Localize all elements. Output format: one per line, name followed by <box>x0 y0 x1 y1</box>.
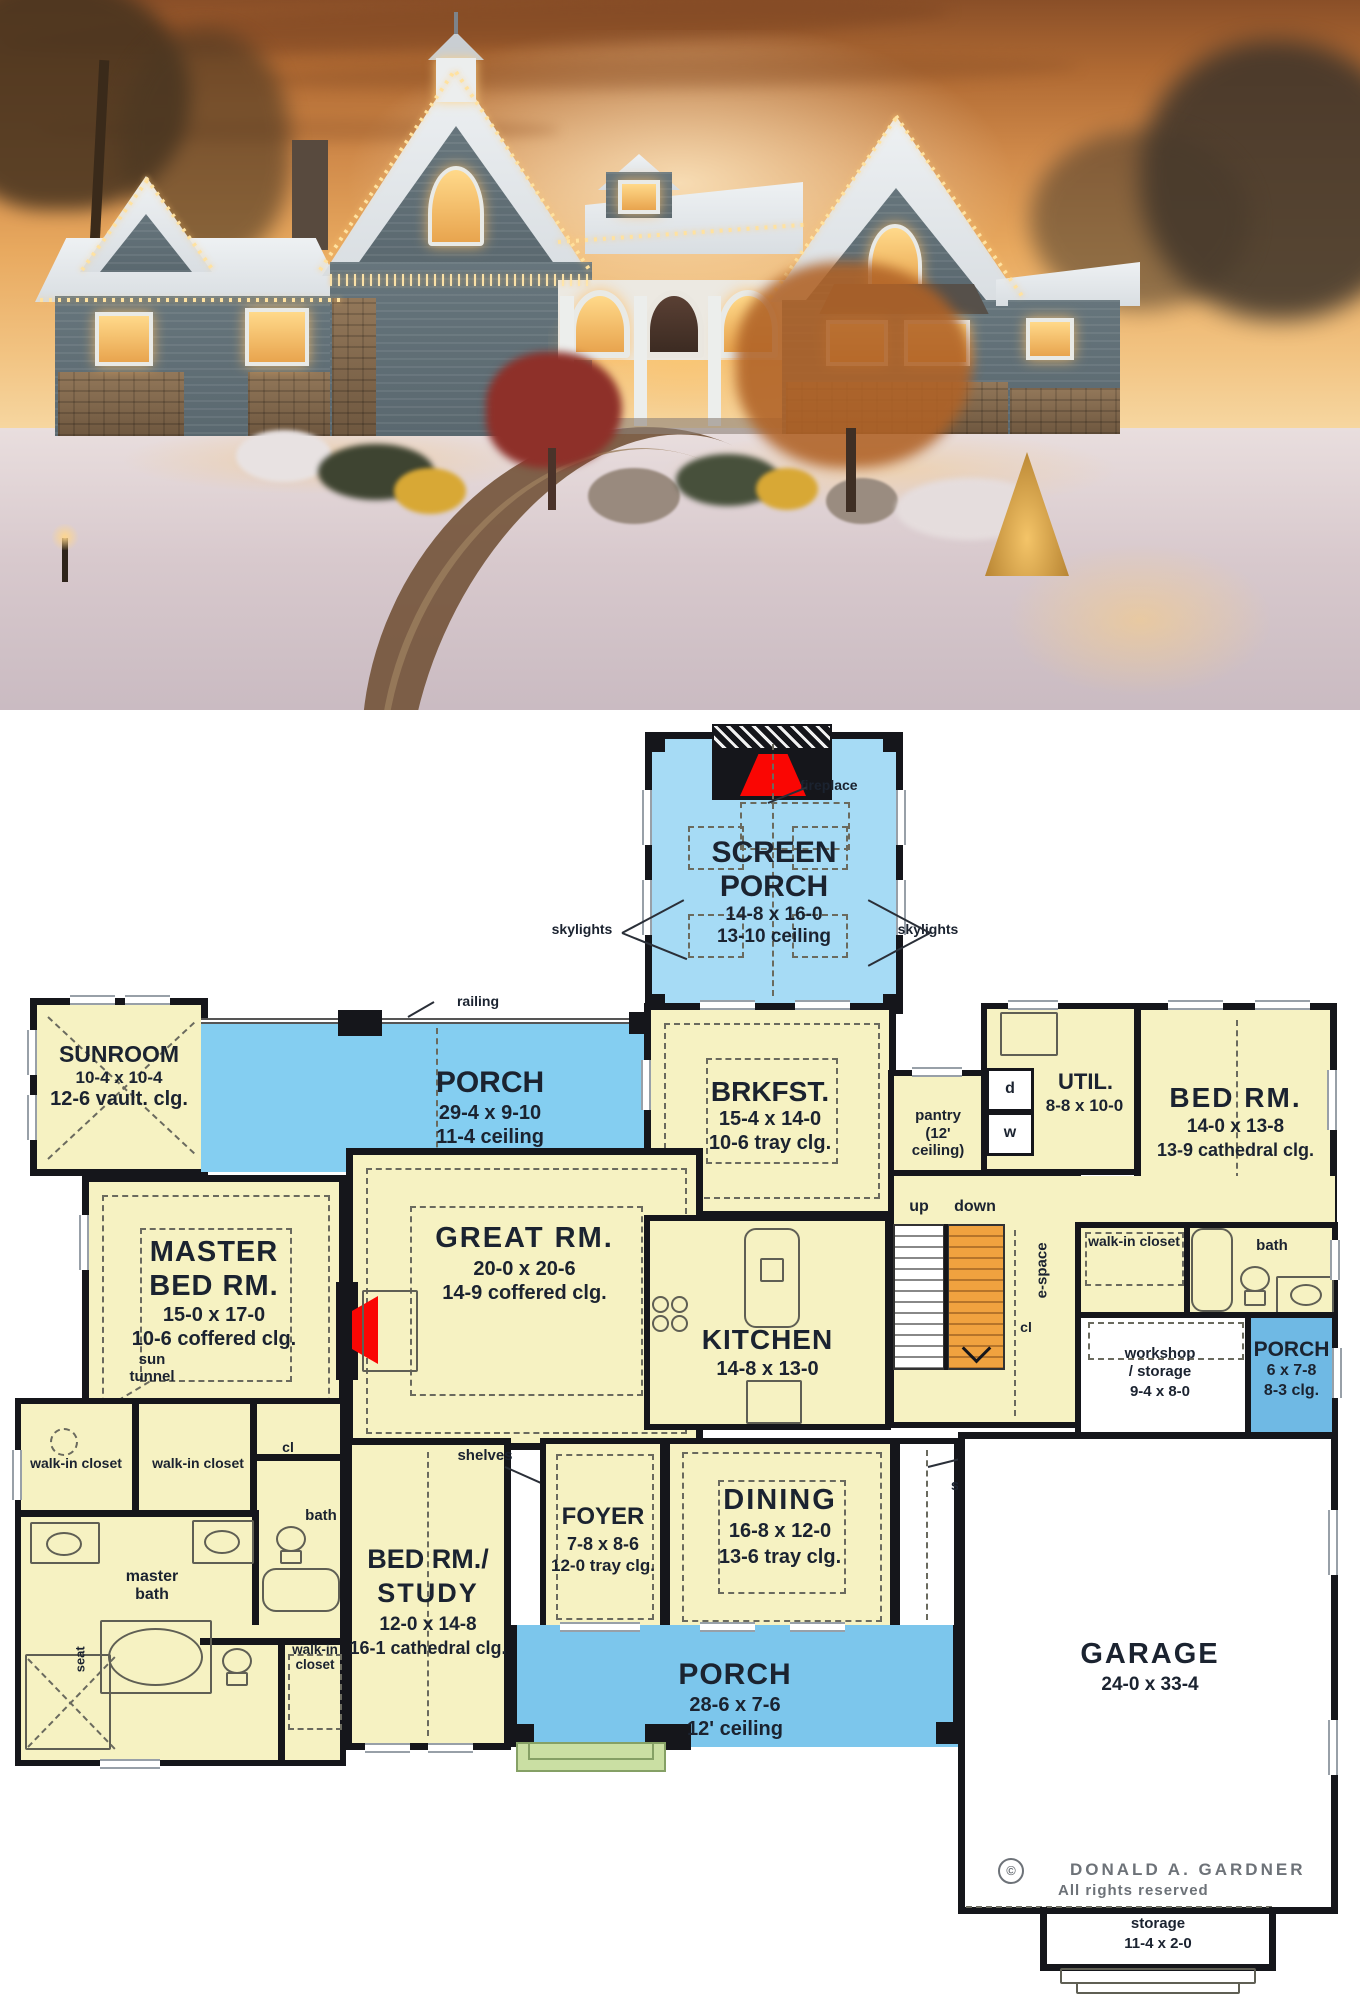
garage-title: GARAGE <box>1040 1638 1260 1670</box>
dining-dims: 16-8 x 12-0 <box>664 1520 896 1542</box>
toilet <box>222 1648 252 1674</box>
breakfast-dims: 15-4 x 14-0 <box>644 1108 896 1130</box>
kitchen-title: KITCHEN <box>644 1324 891 1355</box>
closet-label: cl <box>268 1440 308 1456</box>
window <box>700 1000 755 1010</box>
seat-label: seat <box>74 1636 89 1682</box>
screen-porch-ceiling: 13-10 ceiling <box>645 926 903 947</box>
cupola-spire <box>454 12 458 34</box>
bedroom-right-title: BED RM. <box>1134 1082 1337 1113</box>
down-label: down <box>938 1198 1012 1216</box>
string-lights <box>40 298 346 302</box>
porch-column <box>634 296 647 426</box>
window <box>1328 1510 1338 1575</box>
bath-right-label: bath <box>1242 1238 1302 1255</box>
window <box>790 1622 845 1632</box>
sunroom-title: SUNROOM <box>30 1042 208 1068</box>
utility-dims: 8-8 x 10-0 <box>1042 1096 1127 1115</box>
toilet <box>276 1526 306 1552</box>
bath-label: bath <box>296 1508 346 1525</box>
top-porch-title: PORCH <box>290 1066 690 1100</box>
garage-step <box>1076 1982 1240 1994</box>
sink <box>204 1530 240 1554</box>
porch-post <box>338 1010 382 1036</box>
toilet-tank <box>226 1672 248 1686</box>
boulder <box>588 468 680 524</box>
workshop-label: workshop <box>1095 1346 1225 1363</box>
top-porch-dims: 29-4 x 9-10 <box>290 1102 690 1124</box>
dining-ceiling: 13-6 tray clg. <box>664 1546 896 1568</box>
top-porch-ceiling: 11-4 ceiling <box>290 1126 690 1148</box>
porch-right-ceiling: 8-3 clg. <box>1245 1382 1338 1400</box>
window <box>428 1743 473 1753</box>
hall-bridge <box>1075 1176 1335 1226</box>
bathtub <box>262 1568 340 1612</box>
window <box>700 1622 755 1632</box>
toilet-tank <box>280 1550 302 1564</box>
refrigerator <box>746 1380 802 1424</box>
screen-porch-dims: 14-8 x 16-0 <box>645 904 903 925</box>
cooktop-burner <box>652 1296 669 1313</box>
window <box>1330 1240 1340 1280</box>
storage-bottom-label: storage <box>1040 1916 1276 1933</box>
fireplace-label: fireplace <box>800 778 900 794</box>
stairs-up-run <box>893 1224 945 1370</box>
red-maple-trunk <box>548 448 556 510</box>
foyer-dims: 7-8 x 8-6 <box>540 1534 666 1554</box>
sunroom-dims: 10-4 x 10-4 <box>30 1068 208 1087</box>
master-bath-label: master bath <box>112 1568 192 1604</box>
sunroom-ceiling: 12-6 vault. clg. <box>30 1088 208 1110</box>
window <box>795 1000 850 1010</box>
icicle-lights <box>330 274 592 286</box>
sink <box>46 1532 82 1556</box>
toilet <box>1240 1266 1270 1292</box>
floor-plan: SCREEN PORCH 14-8 x 16-0 13-10 ceiling f… <box>0 710 1360 2000</box>
storage-bottom-dims: 11-4 x 2-0 <box>1040 1936 1276 1953</box>
entry-step-inner <box>528 1742 654 1760</box>
left-window-lit <box>95 312 153 366</box>
window <box>70 995 115 1005</box>
dryer-label: d <box>986 1080 1034 1098</box>
utility-title: UTIL. <box>1038 1070 1133 1095</box>
dining-title: DINING <box>664 1484 896 1516</box>
window <box>912 1067 962 1077</box>
porch-column <box>708 296 721 426</box>
washer-label: w <box>986 1124 1034 1142</box>
porch-post <box>645 732 665 752</box>
window <box>100 1759 160 1769</box>
sink <box>1290 1284 1322 1306</box>
entry-door-gap <box>560 1622 640 1632</box>
garage-side-window-lit <box>1026 318 1074 360</box>
bottom-porch-dims: 28-6 x 7-6 <box>510 1694 960 1716</box>
chimney <box>292 140 328 250</box>
toilet-tank <box>1244 1290 1266 1306</box>
island-sink <box>760 1258 784 1282</box>
railing-leader <box>408 1001 435 1018</box>
foyer-ceiling: 12-0 tray clg. <box>534 1556 672 1575</box>
bed-study-title: BED RM./ <box>345 1544 511 1574</box>
bathtub <box>1191 1228 1233 1312</box>
window <box>1008 1000 1058 1010</box>
interior-wall <box>18 1510 254 1517</box>
pantry-label: pantry <box>893 1108 983 1125</box>
yellow-mums <box>756 468 818 510</box>
master-title: BED RM. <box>82 1270 346 1302</box>
skylights-label-left: skylights <box>542 922 622 938</box>
foyer-title: FOYER <box>540 1504 666 1531</box>
master-dims: 15-0 x 17-0 <box>82 1304 346 1326</box>
window <box>12 1450 22 1500</box>
garage-side-stone <box>1010 388 1120 434</box>
stair-rail <box>944 1224 948 1370</box>
copyright-symbol: © <box>998 1858 1024 1884</box>
master-title: MASTER <box>82 1236 346 1268</box>
window <box>1328 1720 1338 1775</box>
breakfast-title: BRKFST. <box>644 1076 896 1107</box>
window <box>1168 1000 1223 1010</box>
path-lamp-glow <box>50 524 80 550</box>
porch-right-dims: 6 x 7-8 <box>1245 1362 1338 1380</box>
left-window-lit <box>245 308 309 366</box>
porch-right-title: PORCH <box>1245 1338 1338 1362</box>
walkin-closet-label: walk-in closet <box>150 1456 246 1472</box>
kitchen-dims: 14-8 x 13-0 <box>644 1358 891 1380</box>
railing-line <box>201 1018 651 1024</box>
workshop-dims: 9-4 x 8-0 <box>1095 1384 1225 1401</box>
sun-tunnel-label: sun tunnel <box>122 1352 182 1386</box>
workshop-label: / storage <box>1095 1364 1225 1381</box>
walkin-closet-right-label: walk-in closet <box>1086 1234 1182 1250</box>
master-ceiling: 10-6 coffered clg. <box>82 1328 346 1350</box>
interior-wall <box>132 1400 139 1516</box>
pantry-ceiling: (12' ceiling) <box>898 1126 978 1160</box>
bed-study-title: STUDY <box>345 1578 511 1608</box>
bottom-porch-title: PORCH <box>510 1658 960 1692</box>
storage-strip-dash <box>926 1450 928 1620</box>
sun-tunnel-circle ell <box>50 1428 78 1456</box>
screen-porch-title: PORCH <box>645 870 903 904</box>
railing-label: railing <box>438 994 518 1010</box>
bedroom-right-dims: 14-0 x 13-8 <box>1134 1116 1337 1137</box>
boulder <box>826 478 898 524</box>
copyright-name: DONALD A. GARDNER <box>1070 1860 1305 1880</box>
window <box>125 995 170 1005</box>
dormer-window-lit <box>618 180 660 214</box>
bed-study-dims: 12-0 x 14-8 <box>345 1614 511 1635</box>
window <box>365 1743 410 1753</box>
water-heater-outline <box>1000 1012 1058 1056</box>
center-stone-column <box>332 298 376 436</box>
cooktop-burner <box>671 1296 688 1313</box>
bedroom-right-ceiling: 13-9 cathedral clg. <box>1134 1140 1337 1160</box>
window <box>1255 1000 1310 1010</box>
shelves-label: shelves <box>440 1448 530 1465</box>
bottom-porch-ceiling: 12' ceiling <box>510 1718 960 1740</box>
garden-tub <box>108 1628 203 1686</box>
bed-study-ceiling: 16-1 cathedral clg. <box>335 1638 521 1658</box>
house-photo <box>0 0 1360 715</box>
porch-post <box>883 732 903 752</box>
house-plan-sheet: SCREEN PORCH 14-8 x 16-0 13-10 ceiling f… <box>0 0 1360 2000</box>
screen-porch-title: SCREEN <box>645 836 903 870</box>
storage-dash-line <box>966 1906 1272 1908</box>
copyright-rights: All rights reserved <box>1058 1882 1209 1899</box>
left-wing-stone <box>58 372 184 436</box>
walkin-closet-label: walk-in closet <box>28 1456 124 1472</box>
garage-dims: 24-0 x 33-4 <box>1040 1674 1260 1695</box>
espace-label: e-space <box>1035 1215 1052 1325</box>
yellow-mums <box>394 468 466 514</box>
garage-room <box>958 1432 1338 1914</box>
orange-tree-trunk <box>846 428 856 512</box>
closet-label: cl <box>1006 1320 1046 1336</box>
